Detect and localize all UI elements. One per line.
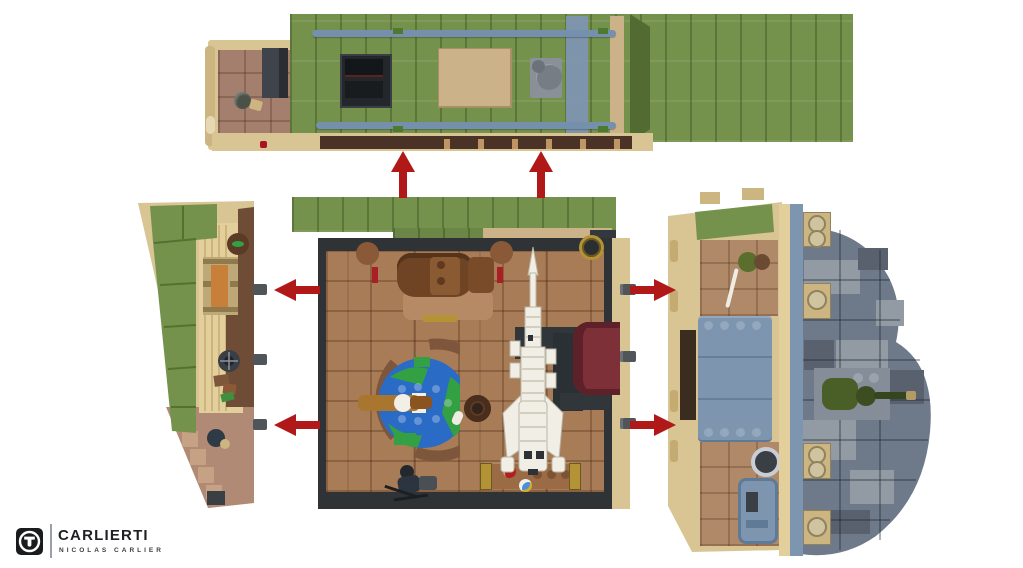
explode-arrow-up-1 — [391, 151, 415, 198]
explode-arrow-left-2 — [274, 414, 320, 436]
explode-arrow-right-1 — [630, 279, 676, 301]
render-canvas: CARLIERTI NICOLAS CARLIER — [0, 0, 1023, 568]
logo-monogram-mark — [16, 528, 43, 555]
explode-arrow-right-2 — [630, 414, 676, 436]
explode-arrows — [0, 0, 1023, 568]
explode-arrow-up-2 — [529, 151, 553, 198]
brand-name: CARLIERTI — [58, 527, 149, 544]
logo-divider — [50, 524, 52, 558]
explode-arrow-left-1 — [274, 279, 320, 301]
brand-subtitle: NICOLAS CARLIER — [59, 547, 164, 554]
brand-logo: CARLIERTI NICOLAS CARLIER — [14, 522, 234, 562]
